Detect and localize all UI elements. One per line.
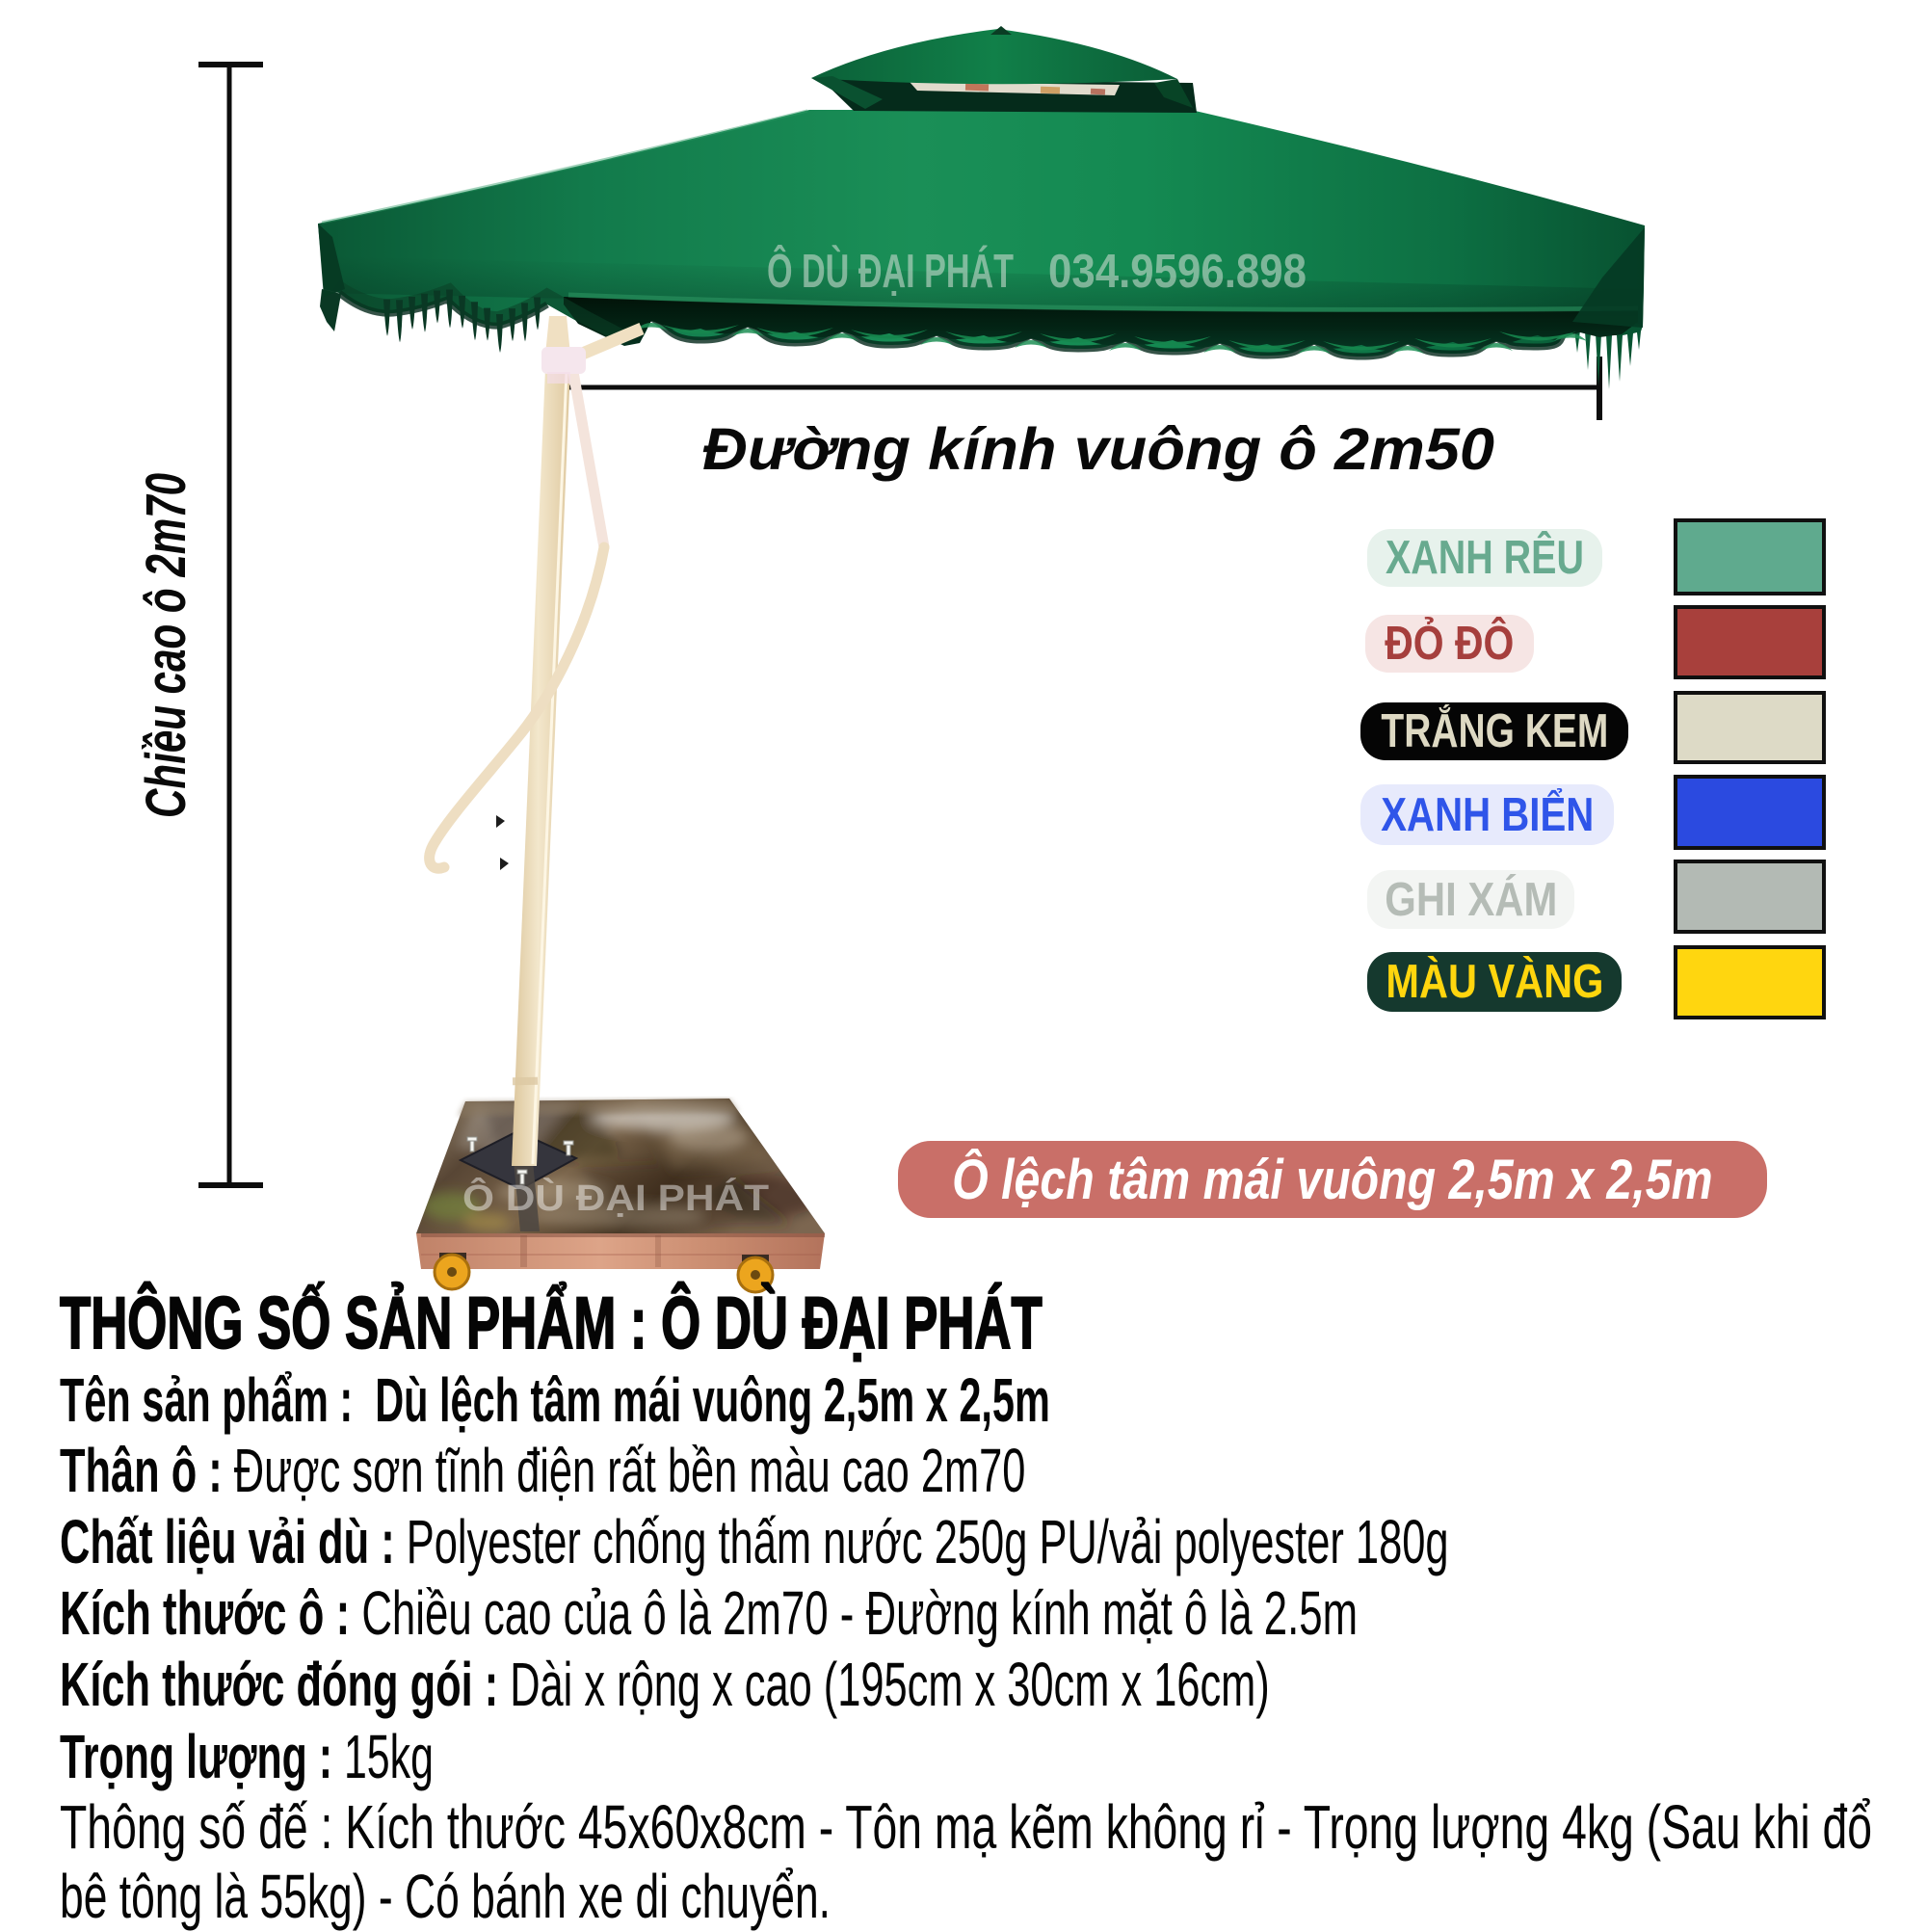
svg-text:Ô DÙ ĐẠI PHÁT: Ô DÙ ĐẠI PHÁT [767,245,1014,298]
svg-text:034.9596.898: 034.9596.898 [1048,246,1307,298]
svg-text:Đường kính vuông ô 2m50: Đường kính vuông ô 2m50 [702,416,1494,482]
svg-text:Chiều cao ô 2m70: Chiều cao ô 2m70 [135,473,198,818]
svg-text:Ô DÙ ĐẠI PHÁT: Ô DÙ ĐẠI PHÁT [462,1176,769,1219]
